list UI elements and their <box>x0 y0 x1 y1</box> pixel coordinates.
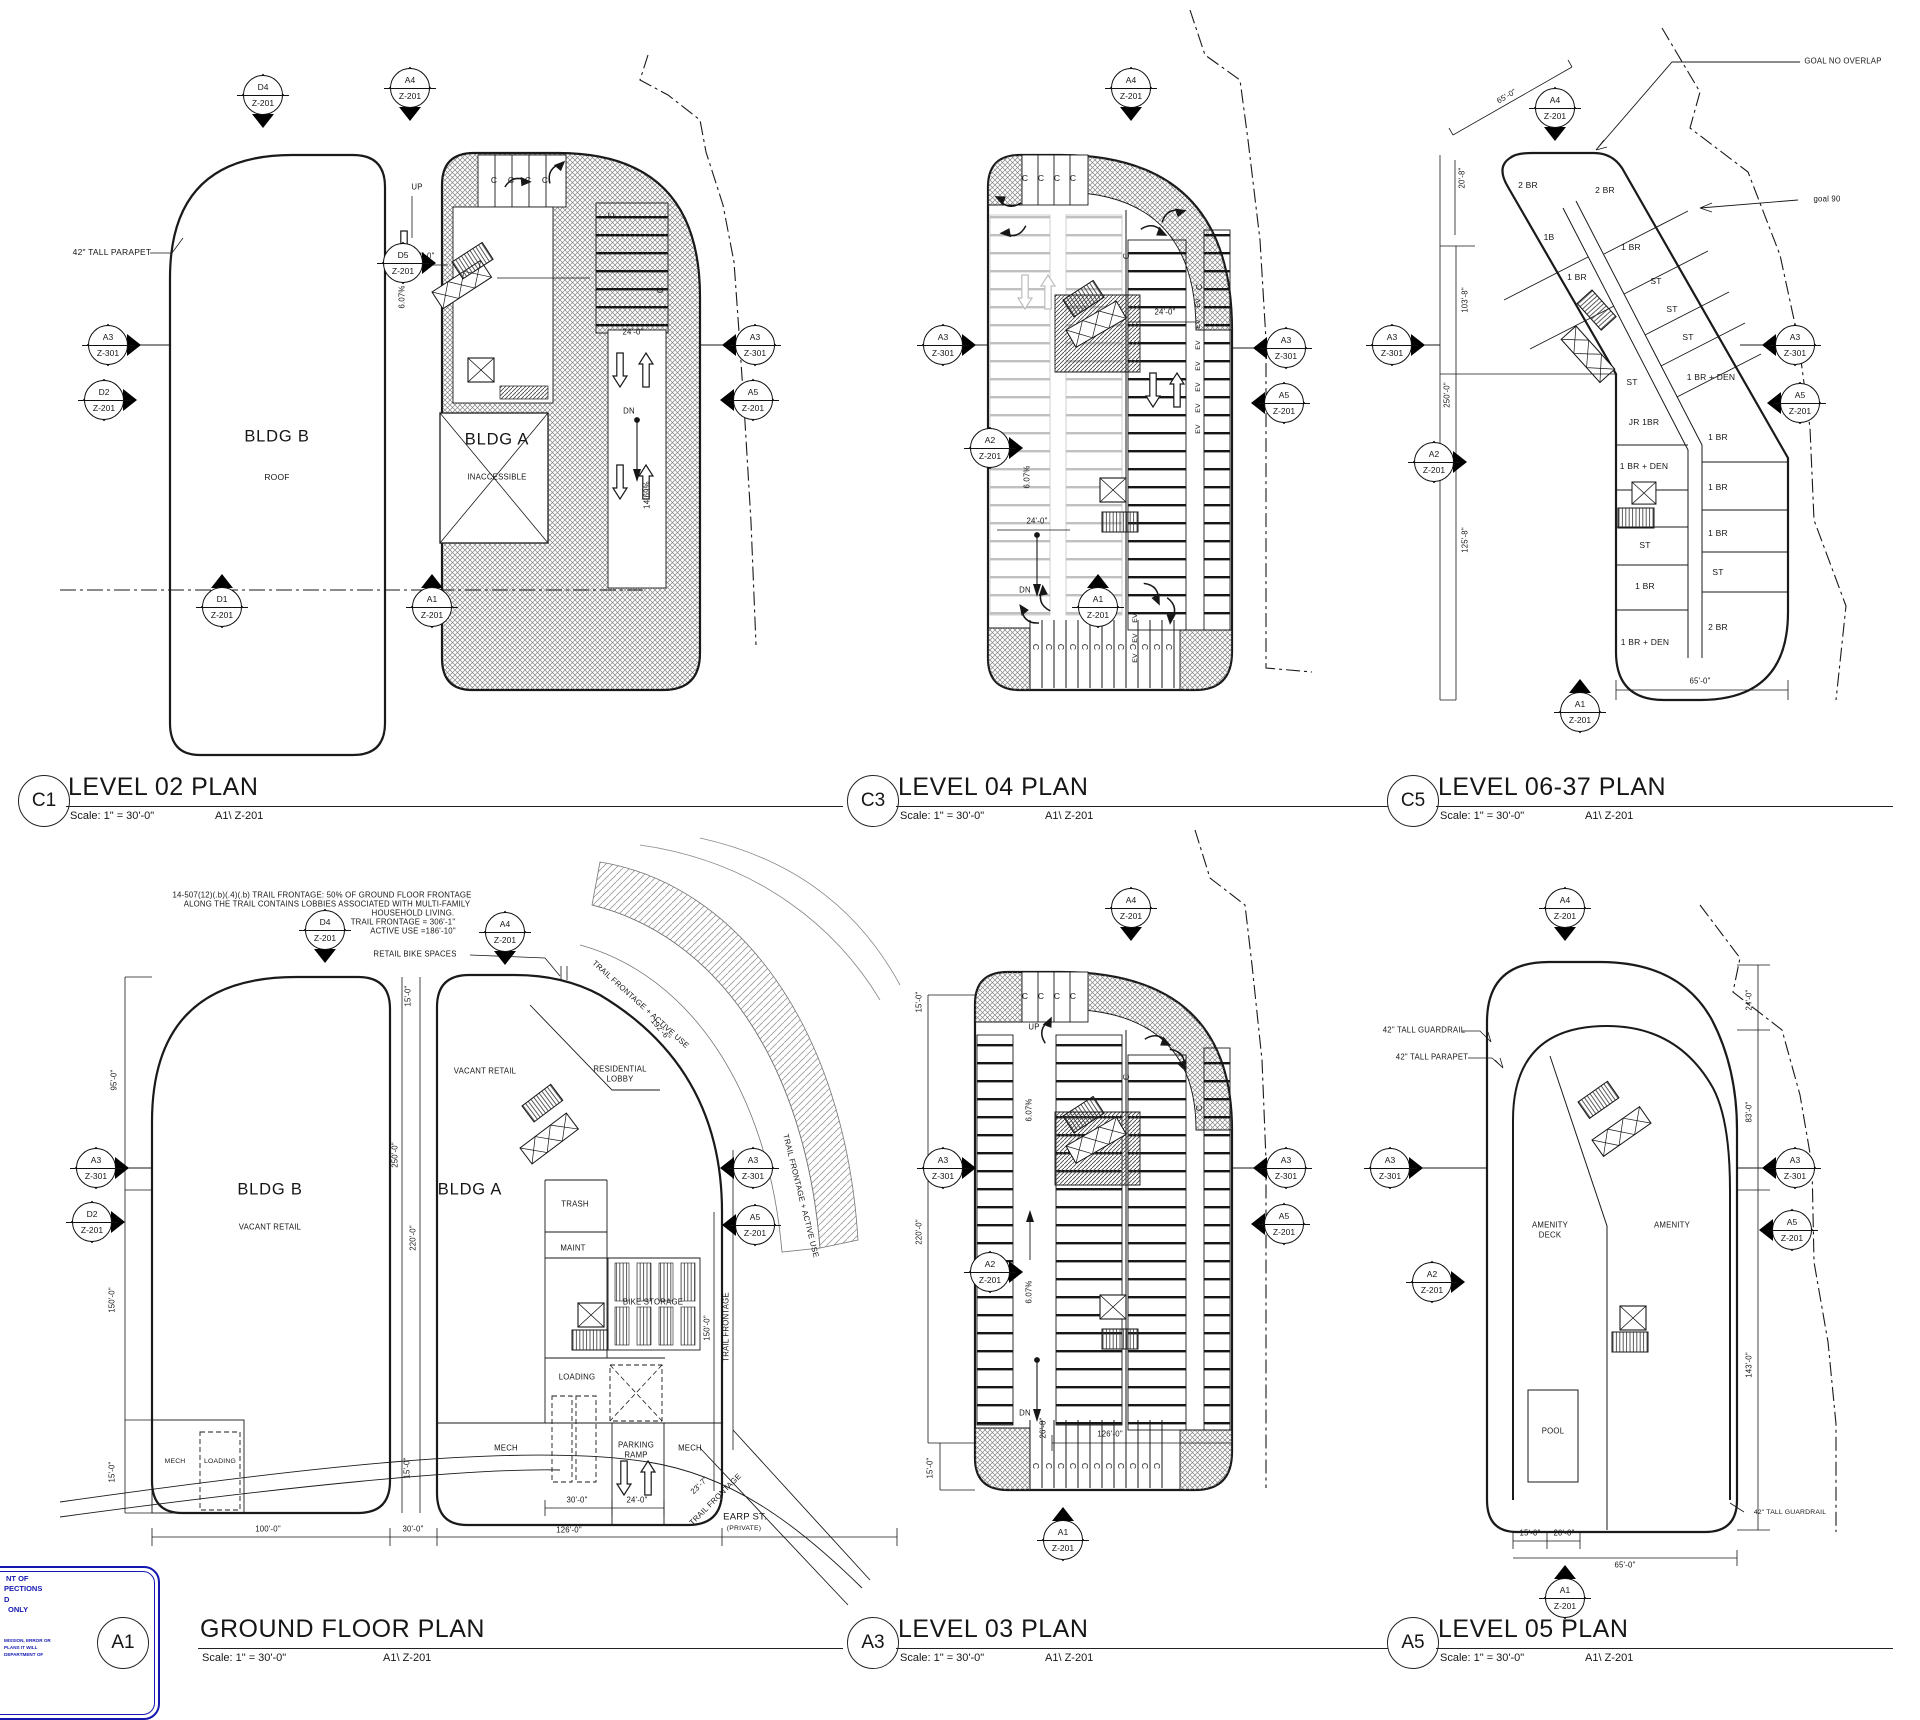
view-marker-a5: A5Z-201 <box>1780 383 1820 423</box>
stall-label-c: C <box>1103 644 1113 650</box>
room-label-amenity-deck: DECK <box>1539 1232 1561 1241</box>
stall-label-c: C <box>1103 1463 1113 1469</box>
viewport-scale-c5: Scale: 1" = 30'-0" <box>1440 810 1524 822</box>
dim-150: 150'-0" <box>704 1315 713 1341</box>
dim-125-8: 125'-8" <box>1462 527 1471 553</box>
stall-label-c: C <box>1067 644 1077 650</box>
room-label-amenity: AMENITY <box>1654 1222 1690 1231</box>
view-marker-a4: A4Z-201 <box>1111 888 1151 928</box>
unit-label: 1 BR <box>1708 529 1728 539</box>
unit-label: 1 BR <box>1635 582 1655 592</box>
stall-label-c: C <box>607 212 617 218</box>
view-marker-a5: A5Z-201 <box>1264 1204 1304 1244</box>
dim-24: 24'-0" <box>626 1497 647 1506</box>
stall-label-c: C <box>1115 644 1125 650</box>
unit-label: 1 BR + DEN <box>1687 373 1736 383</box>
view-marker-a3: A3Z-301 <box>1372 325 1412 365</box>
unit-label: 1 BR <box>1708 483 1728 493</box>
room-label-vacant-retail: VACANT RETAIL <box>239 1224 301 1233</box>
room-label-loading: LOADING <box>204 1458 236 1466</box>
trail-frontage-note-line5: ACTIVE USE =186'-10" <box>370 928 456 937</box>
view-marker-a3: A3Z-301 <box>733 1148 773 1188</box>
dim-15: 15'-0" <box>916 991 925 1012</box>
stall-label-c: C <box>1030 1463 1040 1469</box>
stall-label-c: C <box>1079 1463 1089 1469</box>
view-marker-a3: A3Z-301 <box>88 325 128 365</box>
parapet-note: 42" TALL PARAPET <box>73 248 152 258</box>
view-marker-d5: D5Z-201 <box>383 243 423 283</box>
dim-30: 30'-0" <box>566 1497 587 1506</box>
view-marker-a2: A2Z-201 <box>970 428 1010 468</box>
stall-label-c: C <box>1091 1463 1101 1469</box>
viewport-tag-c5: C5 <box>1387 775 1439 827</box>
stall-label-c: C <box>656 287 666 293</box>
stall-label-c: C <box>1091 644 1101 650</box>
dim-250: 250'-0" <box>392 1142 401 1168</box>
view-marker-a3: A3Z-301 <box>1370 1148 1410 1188</box>
dim-220: 220'-0" <box>410 1225 419 1251</box>
dim-30: 30'-0" <box>402 1526 423 1535</box>
trail-frontage-label: TRAIL FRONTAGE <box>723 1292 732 1362</box>
view-marker-a3: A3Z-301 <box>1775 325 1815 365</box>
viewport-ref-c1: A1\ Z-201 <box>215 810 263 822</box>
stall-label-c: C <box>491 176 497 186</box>
view-marker-a5: A5Z-201 <box>1264 383 1304 423</box>
stall-label-ev: EV <box>1195 403 1203 412</box>
view-marker-a3: A3Z-301 <box>735 325 775 365</box>
retail-bike-spaces-label: RETAIL BIKE SPACES <box>373 951 456 960</box>
dim-65: 65'-0" <box>1689 678 1710 687</box>
unit-label: 2 BR <box>1518 181 1538 191</box>
dim-20: 20'-0" <box>1553 1530 1574 1539</box>
view-marker-d1: D1Z-201 <box>202 587 242 627</box>
dim-83: 83'-0" <box>1746 1101 1755 1122</box>
unit-label: 2 BR <box>1595 186 1615 196</box>
title-rule <box>1436 1648 1893 1649</box>
unit-label: ST <box>1712 568 1723 578</box>
room-label-residential-lobby: RESIDENTIAL <box>593 1066 646 1075</box>
stamp-text: PECTIONS <box>4 1584 42 1593</box>
unit-label: 1 BR + DEN <box>1620 462 1669 472</box>
stall-label-c: C <box>508 176 514 186</box>
viewport-ref-a1: A1\ Z-201 <box>383 1652 431 1664</box>
viewport-tag-c1: C1 <box>18 775 70 827</box>
stall-label-c: C <box>1030 644 1040 650</box>
dim-24: 24'-0" <box>1746 989 1755 1010</box>
unit-label: ST <box>1626 378 1637 388</box>
viewport-title-c5: LEVEL 06-37 PLAN <box>1438 773 1666 802</box>
dim-95: 95'-0" <box>111 1069 120 1090</box>
title-rule <box>896 1648 1388 1649</box>
dim-15: 15'-0" <box>927 1457 936 1478</box>
stamp-text: NT OF <box>6 1574 29 1583</box>
unit-label: 2 BR <box>1708 623 1728 633</box>
unit-label: 1B <box>1544 233 1555 243</box>
stall-label-c: C <box>1043 1463 1053 1469</box>
ramp-slope: 6.07% <box>1026 1280 1035 1303</box>
room-label-mech: MECH <box>678 1445 702 1454</box>
room-label-bldg-b: BLDG B <box>237 1181 302 1200</box>
title-rule <box>198 1648 843 1649</box>
ramp-dn-label: DN <box>1019 1410 1031 1419</box>
room-label-residential-lobby: LOBBY <box>606 1076 633 1085</box>
viewport-tag-a3: A3 <box>847 1617 899 1669</box>
stall-label-ev: EV <box>1195 340 1203 349</box>
dim-15: 15'-0" <box>404 1457 413 1478</box>
level02-linework <box>60 55 756 755</box>
viewport-ref-a3: A1\ Z-201 <box>1045 1652 1093 1664</box>
stall-label-c: C <box>1127 644 1137 650</box>
view-marker-a4: A4Z-201 <box>1535 88 1575 128</box>
room-label-mech: MECH <box>494 1445 518 1454</box>
stall-label-c: C <box>1151 644 1161 650</box>
dim-15: 15'-0" <box>1519 1530 1540 1539</box>
stall-label-c: C <box>1054 992 1060 1002</box>
stall-label-c: C <box>1054 174 1060 184</box>
view-marker-a2: A2Z-201 <box>970 1252 1010 1292</box>
room-label-trash: TRASH <box>561 1201 588 1210</box>
street-label-private: (PRIVATE) <box>727 1525 761 1533</box>
viewport-scale-a3: Scale: 1" = 30'-0" <box>900 1652 984 1664</box>
view-marker-a4: A4Z-201 <box>485 912 525 952</box>
ramp-slope: 6.07% <box>1024 465 1033 488</box>
dim-250: 250'-0" <box>1444 382 1453 408</box>
viewport-ref-a5: A1\ Z-201 <box>1585 1652 1633 1664</box>
stall-label-ev: EV <box>1195 382 1203 391</box>
ramp-slope: 14.69% <box>644 481 653 509</box>
stall-label-c: C <box>1067 1463 1077 1469</box>
viewport-title-a3: LEVEL 03 PLAN <box>898 1615 1088 1644</box>
dim-15: 15'-0" <box>109 1461 118 1482</box>
stall-label-c: C <box>1079 644 1089 650</box>
room-label-parking-ramp: RAMP <box>624 1452 647 1461</box>
dim-20-8: 20'-8" <box>1459 167 1468 188</box>
dim-126: 126'-0" <box>556 1527 582 1536</box>
unit-label: ST <box>1650 277 1661 287</box>
stall-label-c: C <box>542 176 548 186</box>
stall-label-c: C <box>1139 1463 1149 1469</box>
view-marker-a3: A3Z-301 <box>1266 328 1306 368</box>
view-marker-a1: A1Z-201 <box>1545 1578 1585 1618</box>
unit-label: 1 BR <box>1708 433 1728 443</box>
unit-label: 1 BR <box>1567 273 1587 283</box>
view-marker-a2: A2Z-201 <box>1412 1262 1452 1302</box>
goal-90-note: goal 90 <box>1814 196 1841 205</box>
view-marker-a3: A3Z-301 <box>76 1148 116 1188</box>
stall-label-c: C <box>1038 174 1044 184</box>
viewport-title-a5: LEVEL 05 PLAN <box>1438 1615 1628 1644</box>
stamp-text: D <box>4 1595 9 1604</box>
room-label-maint: MAINT <box>560 1245 585 1254</box>
parapet-note: 42" TALL PARAPET <box>1396 1054 1468 1063</box>
viewport-scale-c1: Scale: 1" = 30'-0" <box>70 810 154 822</box>
room-label-loading: LOADING <box>559 1374 596 1383</box>
stall-label-c: C <box>1115 1463 1125 1469</box>
unit-label: ST <box>1666 305 1677 315</box>
stall-label-c: C <box>1163 644 1173 650</box>
stall-label-c: C <box>1022 992 1028 1002</box>
stall-label-ev: EV <box>1132 613 1140 622</box>
guardrail-note: 42" TALL GUARDRAIL <box>1383 1027 1466 1036</box>
goal-no-overlap-note: GOAL NO OVERLAP <box>1804 58 1881 67</box>
stall-label-c: C <box>1151 1463 1161 1469</box>
room-label-mech: MECH <box>165 1458 186 1466</box>
street-label-earp: EARP ST. <box>723 1513 767 1524</box>
title-rule <box>896 806 1388 807</box>
stamp-smalltext: DEPARTMENT OF <box>4 1652 43 1657</box>
stall-label-ev: EV <box>1132 653 1140 662</box>
view-marker-a5: A5Z-201 <box>1772 1210 1812 1250</box>
view-marker-d4: D4Z-201 <box>243 75 283 115</box>
room-label-parking-ramp: PARKING <box>618 1442 654 1451</box>
stall-label-ev: EV <box>1132 633 1140 642</box>
unit-label: 1 BR + DEN <box>1621 638 1670 648</box>
room-label-inaccessible: INACCESSIBLE <box>467 474 526 483</box>
unit-label: ST <box>1639 541 1650 551</box>
ramp-dn-label: DN <box>1019 587 1031 596</box>
title-rule <box>1436 806 1893 807</box>
view-marker-a4: A4Z-201 <box>1111 68 1151 108</box>
viewport-scale-a1: Scale: 1" = 30'-0" <box>202 1652 286 1664</box>
stamp-smalltext: PLANS IT WILL <box>4 1645 37 1650</box>
viewport-tag-c3: C3 <box>847 775 899 827</box>
title-rule <box>66 806 843 807</box>
stall-label-c: C <box>525 176 531 186</box>
ramp-slope: 6.07% <box>399 285 408 308</box>
ramp-up-label: UP <box>411 184 422 193</box>
guardrail-note: 42" TALL GUARDRAIL <box>1754 1509 1826 1517</box>
view-marker-a1: A1Z-201 <box>1043 1520 1083 1560</box>
level03-linework <box>928 830 1266 1490</box>
view-marker-a4: A4Z-201 <box>390 68 430 108</box>
stall-label-c: C <box>1055 1463 1065 1469</box>
dim-100: 100'-0" <box>255 1526 281 1535</box>
ramp-up-label: UP <box>1028 1024 1039 1033</box>
stamp-smalltext: MISSION, ERROR OR <box>4 1638 51 1643</box>
stall-label-c: C <box>1195 284 1205 290</box>
unit-label: ST <box>1682 333 1693 343</box>
stall-label-c: C <box>1122 253 1132 259</box>
room-label-pool: POOL <box>1542 1428 1564 1437</box>
view-marker-a2: A2Z-201 <box>1414 442 1454 482</box>
stall-label-ev: EV <box>1195 424 1203 433</box>
view-marker-a1: A1Z-201 <box>1078 587 1118 627</box>
stall-label-c: C <box>1139 644 1149 650</box>
view-marker-a3: A3Z-301 <box>1775 1148 1815 1188</box>
dim-143: 143'-0" <box>1746 1352 1755 1378</box>
viewport-tag-a1: A1 <box>97 1617 149 1669</box>
stall-label-ev: EV <box>1195 298 1203 307</box>
viewport-tag-a5: A5 <box>1387 1617 1439 1669</box>
dim-15: 15'-0" <box>405 985 414 1006</box>
room-label-bldg-b: BLDG B <box>244 428 309 447</box>
view-marker-a5: A5Z-201 <box>735 1205 775 1245</box>
stamp-text: ONLY <box>8 1605 28 1614</box>
dim-26-8: 26'-8" <box>1040 1417 1049 1438</box>
viewport-ref-c5: A1\ Z-201 <box>1585 810 1633 822</box>
view-marker-d4: D4Z-201 <box>305 910 345 950</box>
viewport-title-c1: LEVEL 02 PLAN <box>68 773 258 802</box>
stall-label-c: C <box>1055 644 1065 650</box>
viewport-ref-c3: A1\ Z-201 <box>1045 810 1093 822</box>
room-label-bike-storage: BIKE STORAGE <box>623 1299 683 1308</box>
view-marker-a1: A1Z-201 <box>1560 692 1600 732</box>
stall-label-c: C <box>1038 992 1044 1002</box>
stall-label-c: C <box>1127 1463 1137 1469</box>
stall-label-c: C <box>1070 174 1076 184</box>
viewport-scale-a5: Scale: 1" = 30'-0" <box>1440 1652 1524 1664</box>
view-marker-d2: D2Z-201 <box>84 380 124 420</box>
room-label-vacant-retail: VACANT RETAIL <box>454 1068 516 1077</box>
view-marker-a3: A3Z-301 <box>923 1148 963 1188</box>
unit-label: 1 BR <box>1621 243 1641 253</box>
stall-label-c: C <box>1022 174 1028 184</box>
stall-label-c: C <box>1070 992 1076 1002</box>
ramp-dn-label: DN <box>623 408 635 417</box>
unit-label: JR 1BR <box>1629 418 1660 428</box>
view-marker-a1: A1Z-201 <box>412 587 452 627</box>
dim-24: 24'-0" <box>1154 309 1175 318</box>
stall-label-c: C <box>1195 1105 1205 1111</box>
dim-65: 65'-0" <box>1614 1562 1635 1571</box>
room-label-bldg-a: BLDG A <box>438 1181 502 1200</box>
stall-label-c: C <box>1043 644 1053 650</box>
ramp-slope: 6.07% <box>1026 1098 1035 1121</box>
dim-150: 150'-0" <box>109 1287 118 1313</box>
view-marker-a5: A5Z-201 <box>733 380 773 420</box>
view-marker-a3: A3Z-301 <box>1266 1148 1306 1188</box>
room-label-bldg-a: BLDG A <box>465 431 529 450</box>
stall-label-c: C <box>1122 1074 1132 1080</box>
viewport-title-a1: GROUND FLOOR PLAN <box>200 1615 485 1644</box>
viewport-scale-c3: Scale: 1" = 30'-0" <box>900 810 984 822</box>
dim-24: 24'-0" <box>1026 518 1047 527</box>
dim-103-8: 103'-8" <box>1462 287 1471 313</box>
view-marker-a4: A4Z-201 <box>1545 888 1585 928</box>
room-label-roof: ROOF <box>264 473 289 483</box>
viewport-title-c3: LEVEL 04 PLAN <box>898 773 1088 802</box>
room-label-amenity-deck: AMENITY <box>1532 1222 1568 1231</box>
dim-24: 24'-0" <box>622 329 643 338</box>
stall-label-ev: EV <box>1195 319 1203 328</box>
dim-126: 126'-0" <box>1097 1431 1123 1440</box>
dim-220: 220'-0" <box>916 1219 925 1245</box>
stall-label-ev: EV <box>1195 361 1203 370</box>
view-marker-a3: A3Z-301 <box>923 325 963 365</box>
view-marker-d2: D2Z-201 <box>72 1202 112 1242</box>
